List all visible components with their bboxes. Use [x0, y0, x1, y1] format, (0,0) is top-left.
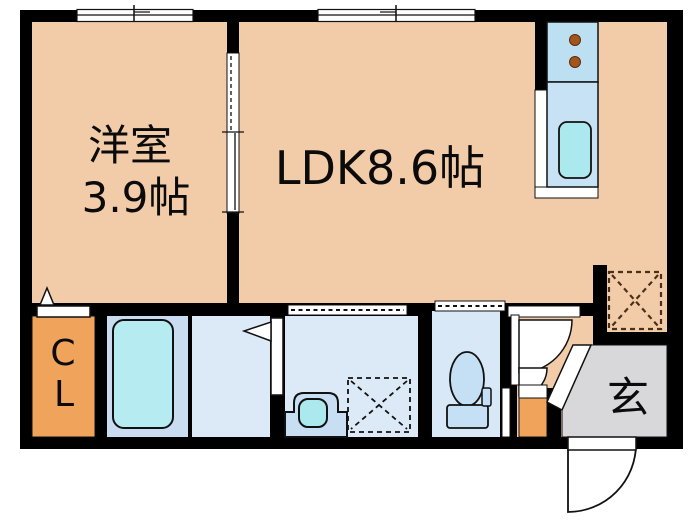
stove-burner-2 [570, 57, 581, 68]
bathtub-icon [113, 320, 173, 428]
entrance-door-leaf [568, 437, 636, 450]
stove-burner-1 [570, 35, 581, 46]
wall-fridge-nook-bottom [593, 332, 683, 345]
toilet-bowl [450, 352, 484, 406]
washroom-folding-door-icon [288, 305, 407, 315]
western-room-size: 3.9帖 [82, 173, 191, 222]
western-room-name: 洋室 [88, 121, 172, 170]
toilet-handle [482, 388, 491, 406]
wall-washroom-toilet [418, 303, 432, 437]
washbasin-bowl [299, 399, 327, 427]
toilet-tank [447, 405, 488, 428]
closet-label-c: C [50, 333, 75, 374]
toilet-sliding-door-icon [435, 301, 505, 311]
kitchen-edge-bottom [535, 187, 598, 198]
wall-bath-dressing [188, 316, 192, 437]
entrance-label: 玄 [607, 373, 649, 422]
toilet-door-leaf-closed [502, 388, 510, 437]
floor-plan-page: 洋室 3.9帖 LDK8.6帖 C L 玄 [0, 0, 700, 525]
wall-closet-right [95, 316, 107, 437]
wall-kitchen-stub [535, 22, 547, 90]
stove-icon [547, 22, 598, 82]
closet-label-l: L [54, 374, 74, 415]
kitchen-edge-left [535, 90, 547, 198]
shoebox [519, 398, 547, 437]
ldk-label: LDK8.6帖 [275, 141, 485, 195]
toilet-door-leaf [511, 315, 519, 385]
floor-plan-svg: 洋室 3.9帖 LDK8.6帖 C L 玄 [0, 0, 700, 525]
washbasin-icon [285, 393, 347, 437]
shoebox-top [519, 385, 547, 398]
kitchen-sink-icon [559, 122, 591, 178]
